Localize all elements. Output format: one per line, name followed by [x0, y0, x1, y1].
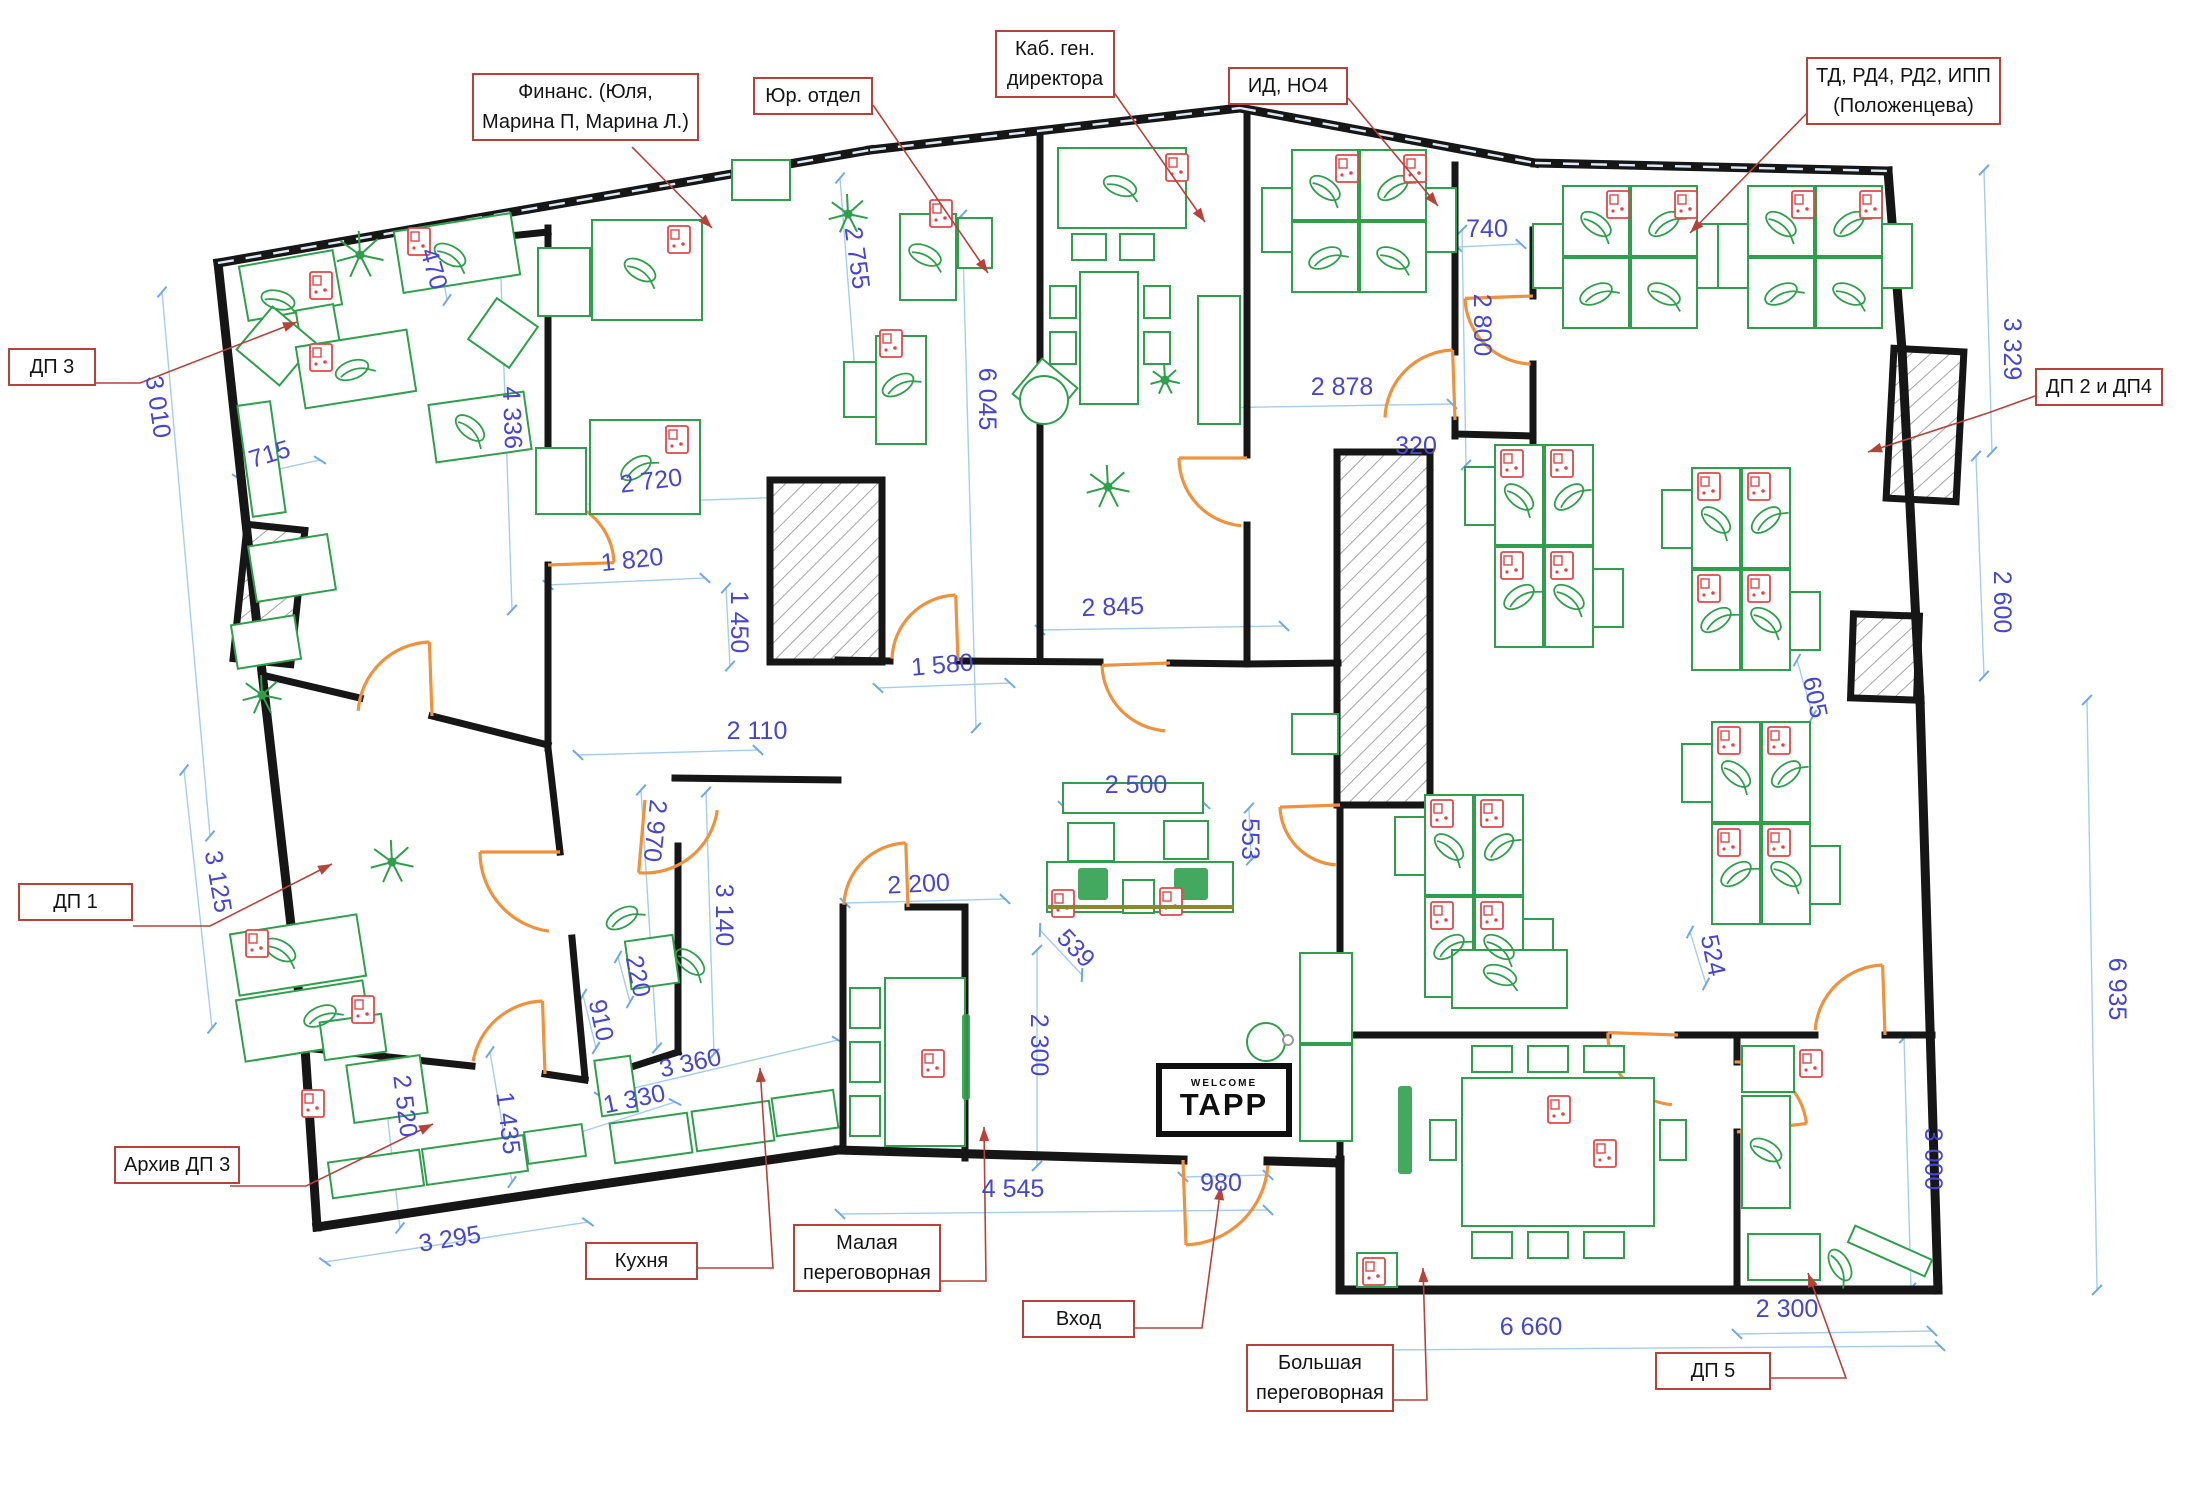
phone-icon: [1698, 575, 1720, 602]
dimension-label: 2 300: [1025, 1014, 1053, 1077]
callout-kitchen: Кухня: [585, 1242, 698, 1280]
callout-small-meeting-text: Малая: [803, 1228, 931, 1258]
phone-icon: [310, 272, 332, 299]
furniture: [230, 148, 1932, 1289]
dimension-label: 1 820: [600, 543, 665, 577]
dimension-label: 320: [1395, 432, 1437, 460]
dimension-label: 3 125: [199, 848, 237, 914]
phone-icon: [1718, 829, 1740, 856]
phone-icon: [1748, 575, 1770, 602]
callout-dp1: ДП 1: [18, 883, 133, 921]
phone-icon: [1860, 191, 1882, 218]
callout-dp5: ДП 5: [1655, 1352, 1771, 1390]
callout-finance-text: Марина П, Марина Л.): [482, 107, 689, 137]
phone-icon: [1431, 902, 1453, 929]
callout-entrance: Вход: [1022, 1300, 1135, 1338]
phone-icon: [1792, 191, 1814, 218]
dimension-label: 4 336: [497, 386, 527, 450]
chair-icon: [1824, 1246, 1859, 1289]
dimension-label: 980: [1200, 1169, 1242, 1197]
plant-icon: [1087, 465, 1130, 507]
phone-icon: [1481, 902, 1503, 929]
phone-icon: [1481, 800, 1503, 827]
phone-icon: [302, 1090, 324, 1117]
dimension-label: 3 140: [710, 884, 738, 947]
welcome-sign: WELCOME TAPP: [1156, 1063, 1292, 1137]
phone-icon: [1748, 473, 1770, 500]
plant-icon: [1151, 365, 1180, 394]
callout-big-meeting: Большаяпереговорная: [1246, 1344, 1394, 1412]
dimension-label: 3 000: [1919, 1128, 1947, 1191]
callout-ceo: Каб. ген.директора: [995, 30, 1115, 98]
callout-legal-text: Юр. отдел: [763, 81, 863, 111]
phone-icon: [1431, 800, 1453, 827]
dimension-label: 2 200: [887, 868, 951, 899]
callout-dp3: ДП 3: [8, 348, 96, 386]
phone-icon: [1551, 552, 1573, 579]
phone-icon: [310, 344, 332, 371]
phone-icon: [1166, 154, 1188, 181]
phone-icon: [1607, 191, 1629, 218]
callout-archive-dp3: Архив ДП 3: [114, 1146, 240, 1184]
callout-id-ho4-text: ИД, НО4: [1238, 71, 1338, 101]
callout-id-ho4: ИД, НО4: [1228, 67, 1348, 105]
callout-dp2-dp4: ДП 2 и ДП4: [2035, 368, 2163, 406]
phone-icon: [1800, 1050, 1822, 1077]
dimension-label: 524: [1695, 932, 1731, 979]
dimension-label: 2 500: [1105, 771, 1168, 799]
dimension-label: 553: [1236, 818, 1264, 860]
dimension-label: 3 329: [1998, 318, 2026, 381]
floor-plan-canvas: 3 0107154704 3362 7201 8201 4502 1102 97…: [0, 0, 2196, 1488]
dimension-label: 2 300: [1756, 1295, 1819, 1323]
phone-icon: [1594, 1140, 1616, 1167]
dimension-label: 539: [1051, 924, 1100, 973]
callout-td: ТД, РД4, РД2, ИПП(Положенцева): [1806, 57, 2001, 125]
callout-small-meeting: Малаяпереговорная: [793, 1224, 941, 1292]
phone-icon: [1768, 727, 1790, 754]
dimension-label: 740: [1466, 215, 1508, 243]
dimension-label: 605: [1797, 674, 1833, 721]
phone-icon: [922, 1050, 944, 1077]
dimension-label: 2 845: [1081, 592, 1145, 622]
phone-icon: [1548, 1096, 1570, 1123]
welcome-sign-brand: TAPP: [1180, 1089, 1268, 1122]
phone-icon: [1551, 450, 1573, 477]
chair-icon: [603, 899, 646, 934]
plant-icon: [371, 840, 414, 882]
dimension-label: 3 295: [417, 1220, 483, 1257]
callout-ceo-text: директора: [1005, 64, 1105, 94]
dimension-label: 1 450: [725, 591, 753, 654]
dimension-label: 3 360: [657, 1043, 724, 1083]
phone-icon: [880, 330, 902, 357]
dimension-label: 6 660: [1500, 1313, 1563, 1341]
dimension-label: 2 110: [727, 717, 788, 745]
callout-archive-dp3-text: Архив ДП 3: [124, 1150, 230, 1180]
phone-icon: [1363, 1258, 1385, 1285]
callout-entrance-text: Вход: [1032, 1304, 1125, 1334]
callout-dp5-text: ДП 5: [1665, 1356, 1761, 1386]
dimension-label: 1 580: [910, 648, 975, 681]
phone-icon: [666, 426, 688, 453]
callout-td-text: ТД, РД4, РД2, ИПП: [1816, 61, 1991, 91]
callout-legal: Юр. отдел: [753, 77, 873, 115]
phone-icon: [1675, 191, 1697, 218]
phone-icon: [1336, 155, 1358, 182]
phone-icon: [1718, 727, 1740, 754]
dimension-label: 6 935: [2103, 958, 2131, 1021]
dimension-label: 2 878: [1311, 373, 1374, 401]
callout-dp2-dp4-text: ДП 2 и ДП4: [2045, 372, 2153, 402]
phone-icon: [246, 930, 268, 957]
callout-finance: Финанс. (Юля,Марина П, Марина Л.): [472, 73, 699, 141]
callout-big-meeting-text: переговорная: [1256, 1378, 1384, 1408]
phone-icon: [1698, 473, 1720, 500]
dimension-label: 910: [583, 997, 619, 1044]
phone-icon: [668, 226, 690, 253]
phone-icon: [352, 996, 374, 1023]
phone-icon: [1052, 890, 1074, 917]
dimension-label: 2 600: [1988, 571, 2016, 634]
dimension-label: 2 755: [839, 225, 875, 291]
dimension-label: 2 800: [1468, 294, 1496, 357]
callout-small-meeting-text: переговорная: [803, 1258, 931, 1288]
callout-ceo-text: Каб. ген.: [1005, 34, 1105, 64]
phone-icon: [1501, 552, 1523, 579]
phone-icon: [1768, 829, 1790, 856]
dimension-label: 4 545: [982, 1175, 1045, 1203]
callout-kitchen-text: Кухня: [595, 1246, 688, 1276]
phone-icon: [1501, 450, 1523, 477]
callout-dp1-text: ДП 1: [28, 887, 123, 917]
callout-big-meeting-text: Большая: [1256, 1348, 1384, 1378]
callout-finance-text: Финанс. (Юля,: [482, 77, 689, 107]
phone-icon: [1160, 888, 1182, 915]
dimension-label: 6 045: [973, 368, 1001, 431]
callout-dp3-text: ДП 3: [18, 352, 86, 382]
floor-plan-drawing: 3 0107154704 3362 7201 8201 4502 1102 97…: [0, 0, 2196, 1488]
callout-td-text: (Положенцева): [1816, 91, 1991, 121]
